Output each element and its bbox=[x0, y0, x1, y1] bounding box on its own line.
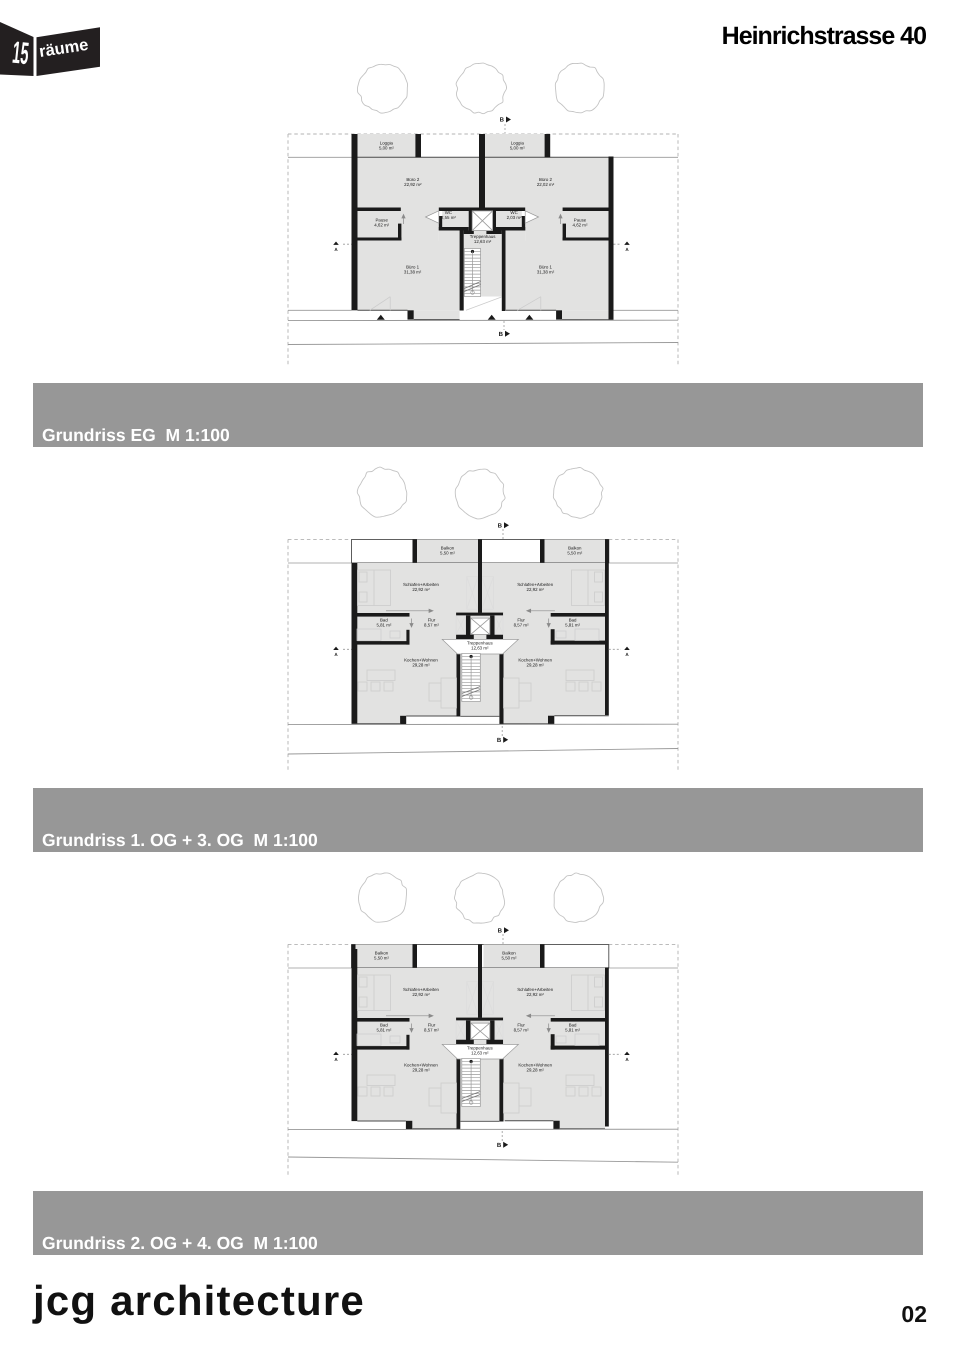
svg-text:A: A bbox=[625, 247, 629, 252]
svg-text:4,62 m²: 4,62 m² bbox=[573, 222, 588, 227]
svg-text:31,38 m²: 31,38 m² bbox=[537, 269, 555, 274]
svg-text:A: A bbox=[625, 1057, 629, 1062]
svg-text:B: B bbox=[497, 1142, 502, 1149]
svg-text:B: B bbox=[498, 928, 503, 935]
svg-text:22,92 m²: 22,92 m² bbox=[527, 992, 545, 997]
svg-text:22,02 m²: 22,02 m² bbox=[537, 182, 555, 187]
svg-text:4,62 m²: 4,62 m² bbox=[374, 222, 389, 227]
svg-text:8,57 m²: 8,57 m² bbox=[514, 1027, 529, 1032]
svg-text:5,50 m²: 5,50 m² bbox=[374, 955, 389, 960]
svg-text:B: B bbox=[499, 331, 504, 338]
svg-text:5,81 m²: 5,81 m² bbox=[376, 622, 391, 627]
svg-text:2,55 m²: 2,55 m² bbox=[441, 215, 456, 220]
svg-text:29,28 m²: 29,28 m² bbox=[412, 662, 430, 667]
svg-text:5,81 m²: 5,81 m² bbox=[565, 622, 580, 627]
svg-text:B: B bbox=[500, 117, 505, 124]
svg-text:5,50 m²: 5,50 m² bbox=[440, 550, 455, 555]
svg-text:5,00 m²: 5,00 m² bbox=[510, 145, 525, 150]
svg-text:A: A bbox=[334, 652, 338, 657]
svg-text:2,03 m²: 2,03 m² bbox=[507, 215, 522, 220]
svg-text:5,81 m²: 5,81 m² bbox=[376, 1027, 391, 1032]
svg-text:8,57 m²: 8,57 m² bbox=[424, 1027, 439, 1032]
svg-text:29,28 m²: 29,28 m² bbox=[527, 1067, 545, 1072]
svg-text:B: B bbox=[497, 737, 502, 744]
svg-text:31,38 m²: 31,38 m² bbox=[404, 269, 422, 274]
svg-text:12,63 m²: 12,63 m² bbox=[474, 239, 492, 244]
svg-text:22,92 m²: 22,92 m² bbox=[404, 182, 422, 187]
svg-text:5,00 m²: 5,00 m² bbox=[379, 145, 394, 150]
svg-text:12,63 m²: 12,63 m² bbox=[471, 645, 489, 650]
svg-text:5,81 m²: 5,81 m² bbox=[565, 1027, 580, 1032]
svg-text:12,63 m²: 12,63 m² bbox=[471, 1050, 489, 1055]
svg-text:A: A bbox=[334, 1057, 338, 1062]
svg-text:29,28 m²: 29,28 m² bbox=[527, 662, 545, 667]
svg-text:22,92 m²: 22,92 m² bbox=[412, 992, 430, 997]
svg-text:22,92 m²: 22,92 m² bbox=[527, 587, 545, 592]
svg-text:B: B bbox=[498, 523, 503, 530]
svg-text:22,92 m²: 22,92 m² bbox=[412, 587, 430, 592]
svg-text:5,50 m²: 5,50 m² bbox=[502, 955, 517, 960]
svg-text:A: A bbox=[625, 652, 629, 657]
svg-text:8,57 m²: 8,57 m² bbox=[424, 622, 439, 627]
svg-text:A: A bbox=[334, 247, 338, 252]
svg-text:8,57 m²: 8,57 m² bbox=[514, 622, 529, 627]
svg-text:5,50 m²: 5,50 m² bbox=[567, 550, 582, 555]
svg-text:29,28 m²: 29,28 m² bbox=[412, 1067, 430, 1072]
